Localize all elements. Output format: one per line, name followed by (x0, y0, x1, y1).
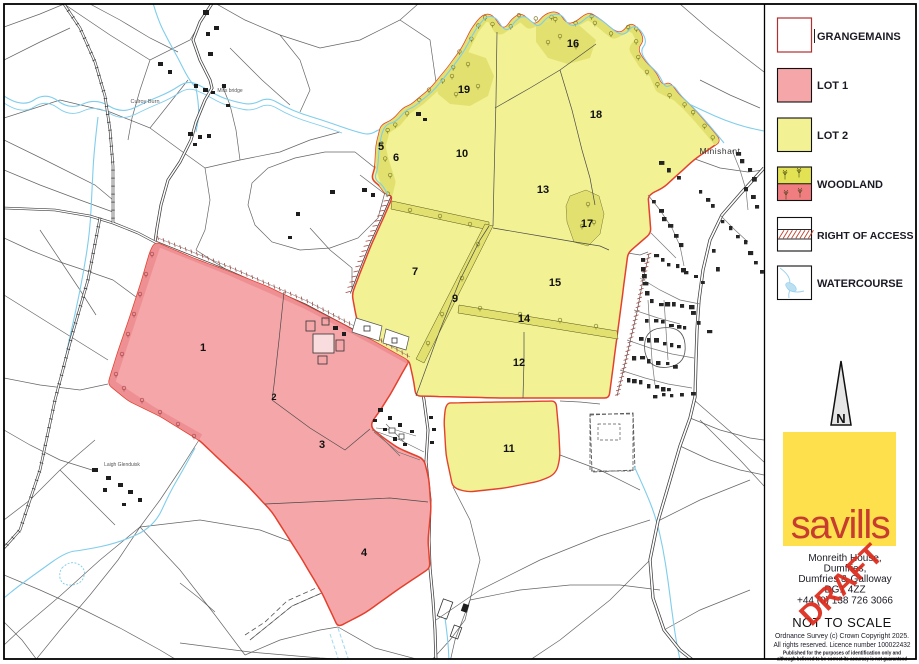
svg-text:10: 10 (456, 148, 468, 160)
svg-text:Minishant: Minishant (700, 146, 741, 156)
svg-text:GRANGEMAINS: GRANGEMAINS (817, 31, 901, 43)
svg-text:WATERCOURSE: WATERCOURSE (817, 278, 903, 290)
svg-text:5: 5 (378, 141, 384, 153)
svg-text:11: 11 (503, 443, 515, 455)
svg-text:18: 18 (590, 109, 602, 121)
svg-text:4: 4 (361, 547, 368, 559)
svg-text:13: 13 (537, 184, 549, 196)
svg-text:14: 14 (518, 313, 531, 325)
svg-text:19: 19 (458, 84, 470, 96)
svg-text:15: 15 (549, 277, 561, 289)
svg-text:2: 2 (271, 392, 276, 402)
svg-text:1: 1 (200, 342, 206, 354)
svg-text:Culroy Burn: Culroy Burn (130, 99, 159, 105)
svg-text:16: 16 (567, 38, 579, 50)
svg-text:6: 6 (393, 152, 399, 164)
svg-text:WOODLAND: WOODLAND (817, 179, 883, 191)
svg-text:9: 9 (452, 293, 458, 305)
svg-text:Mills bridge: Mills bridge (217, 88, 243, 94)
svg-text:All rights reserved. Licence n: All rights reserved. Licence number 1000… (774, 640, 911, 649)
svg-text:savills: savills (791, 503, 890, 547)
svg-text:Ordnance Survey (c) Crown Copy: Ordnance Survey (c) Crown Copyright 2025… (775, 631, 909, 640)
svg-text:RIGHT OF ACCESS: RIGHT OF ACCESS (817, 230, 913, 242)
svg-text:N: N (836, 411, 845, 426)
svg-text:Laigh Glenduisk: Laigh Glenduisk (104, 462, 140, 468)
svg-text:17: 17 (581, 218, 593, 230)
svg-text:3: 3 (319, 439, 325, 451)
svg-text:LOT 2: LOT 2 (817, 130, 848, 142)
svg-text:7: 7 (412, 266, 418, 278)
svg-text:LOT 1: LOT 1 (817, 80, 848, 92)
svg-text:12: 12 (513, 357, 525, 369)
